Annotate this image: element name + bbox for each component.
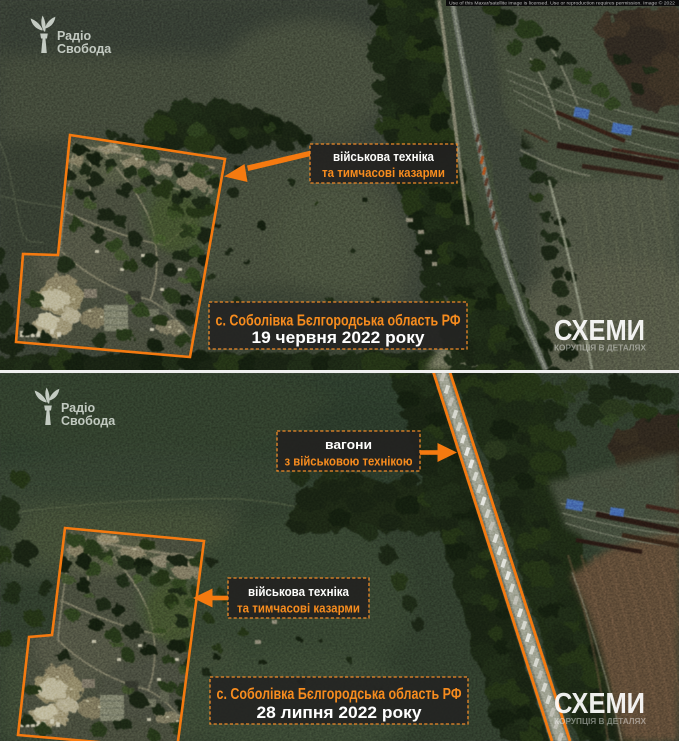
svg-text:СХЕМИ: СХЕМИ <box>554 688 645 720</box>
svg-text:СХЕМИ: СХЕМИ <box>554 315 645 347</box>
svg-text:вагони: вагони <box>325 437 372 452</box>
svg-text:28 липня 2022 року: 28 липня 2022 року <box>257 704 423 722</box>
svg-text:військова техніка: військова техніка <box>333 149 435 164</box>
svg-text:КОРУПЦІЯ В ДЕТАЛЯХ: КОРУПЦІЯ В ДЕТАЛЯХ <box>554 717 647 726</box>
svg-text:військова техніка: військова техніка <box>248 584 350 599</box>
svg-text:та тимчасові казарми: та тимчасові казарми <box>237 601 360 616</box>
svg-text:Радіо: Радіо <box>57 29 92 43</box>
svg-text:19 червня 2022 року: 19 червня 2022 року <box>252 329 426 347</box>
svg-text:та тимчасові казарми: та тимчасові казарми <box>322 165 445 180</box>
svg-text:КОРУПЦІЯ В ДЕТАЛЯХ: КОРУПЦІЯ В ДЕТАЛЯХ <box>554 344 647 353</box>
svg-text:Радіо: Радіо <box>61 401 96 415</box>
svg-text:Свобода: Свобода <box>61 414 116 428</box>
svg-text:Use of this Maxar/satellite im: Use of this Maxar/satellite image is lic… <box>449 1 676 6</box>
svg-text:з військовою технікою: з військовою технікою <box>285 454 413 469</box>
svg-text:Свобода: Свобода <box>57 42 112 56</box>
svg-text:с. Соболівка Бєлгородська обла: с. Соболівка Бєлгородська область РФ <box>216 313 461 330</box>
svg-text:с. Соболівка Бєлгородська обла: с. Соболівка Бєлгородська область РФ <box>217 686 462 703</box>
